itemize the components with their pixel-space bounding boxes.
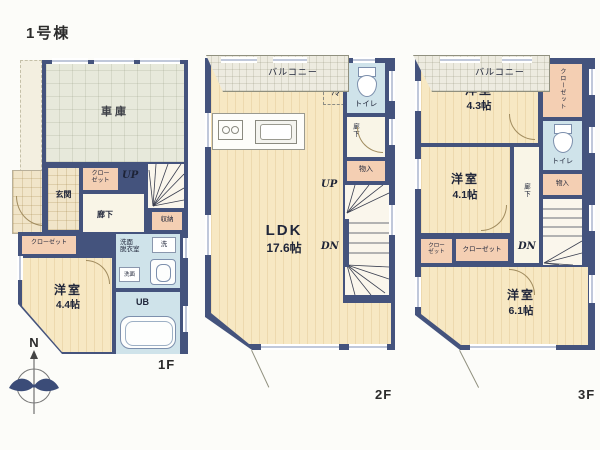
bedroom1-door-arc — [509, 114, 535, 140]
window-3f-right-1 — [589, 69, 595, 95]
window-2f-top-1 — [221, 57, 257, 63]
window-2f-right-1 — [389, 71, 395, 101]
hallway-3f-label: 廊下 — [522, 183, 529, 198]
floor-plan-1f: 車庫 玄関 クロー ゼット 廊下 UP 収納 クローゼット — [12, 58, 196, 376]
window-2f-left-2 — [205, 215, 211, 255]
closet3-3f: クローゼット — [456, 239, 508, 261]
bedroom2-size: 4.1帖 — [433, 189, 497, 201]
up-label-2f: UP — [321, 179, 337, 191]
entrance-closet-label: クロー ゼット — [83, 171, 118, 185]
bath-label: UB — [136, 297, 149, 307]
window-3f-left-3 — [415, 277, 421, 307]
floor-label-1f: 1F — [158, 358, 175, 373]
bedroom3-size: 6.1帖 — [489, 305, 553, 317]
stove-icon — [218, 120, 243, 140]
toilet-icon-2f — [357, 75, 377, 97]
garage-door-2 — [94, 58, 134, 64]
toilet-icon-3f — [553, 132, 573, 153]
storage-1f: 収納 — [152, 212, 182, 230]
balcony-3f-label: バルコニー — [460, 67, 540, 77]
floor-plan-3f: 洋室 4.3帖 クローゼット トイレ 物入 洋室 4.1帖 廊下 DN — [410, 55, 600, 400]
window-2f-left-1 — [205, 113, 211, 147]
window-3f-right-3 — [589, 205, 595, 231]
washroom-label: 洗面 脱衣室 — [120, 239, 140, 254]
dn-label-2f: DN — [321, 241, 339, 253]
storage-2f-label: 物入 — [347, 166, 385, 174]
storage-1f-label: 収納 — [152, 216, 182, 223]
vanity-sink-icon: 洗面 — [119, 267, 140, 282]
bathroom-1f: UB — [116, 292, 180, 354]
stairs-2f — [345, 185, 389, 295]
hallway-3f: 廊下 DN — [514, 147, 539, 263]
window-3f-right-4 — [589, 275, 595, 303]
balcony-2f-label: バルコニー — [253, 67, 333, 77]
window-3f-left-1 — [415, 81, 421, 111]
toilet-room-2f: トイレ — [347, 63, 385, 113]
closet3-3f-label: クローゼット — [456, 246, 508, 253]
closet2-3f: クロー ゼット — [421, 239, 452, 263]
bedroom2-door-arc — [481, 205, 507, 231]
window-2f-bottom-1 — [261, 344, 339, 350]
floor-label-2f: 2F — [375, 388, 392, 403]
compass-icon: N — [8, 336, 66, 424]
stairs-3f-treads — [543, 199, 582, 265]
washer-label: 洗 — [153, 241, 175, 248]
stairs-3f — [543, 199, 582, 265]
floor-label-3f: 3F — [578, 388, 595, 403]
balcony-3f-edge — [459, 350, 479, 388]
garage-door-1 — [52, 58, 88, 64]
closet1-3f-label: クローゼット — [558, 68, 565, 110]
stairs-1f — [148, 164, 184, 208]
ldk-size: 17.6帖 — [241, 242, 327, 256]
compass-rose — [8, 348, 66, 422]
kitchen-sink-icon — [255, 120, 297, 144]
window-3f-right-2 — [589, 127, 595, 153]
garage-label: 車庫 — [46, 106, 184, 119]
hallway-1f: 廊下 — [83, 194, 144, 232]
bedroom-1f-size: 4.4帖 — [36, 300, 100, 312]
bedroom3-3f: 洋室 6.1帖 — [421, 267, 588, 345]
window-1f-right-2 — [183, 306, 189, 332]
window-2f-top-2 — [273, 57, 307, 63]
storage-3f-label: 物入 — [543, 180, 582, 187]
washer-icon: 洗 — [152, 237, 176, 253]
closet-1f-label: クローゼット — [22, 240, 76, 247]
floor-plan-2f: LDK 17.6帖 冷 トイレ 廊下 — [203, 55, 400, 400]
stairs-2f-treads — [345, 185, 389, 295]
window-2f-bottom-2 — [349, 344, 387, 350]
entrance-closet: クロー ゼット — [83, 168, 118, 190]
ldk-name: LDK — [241, 222, 327, 239]
hallway-1f-label: 廊下 — [97, 210, 113, 219]
balcony-2f-edge — [251, 350, 269, 388]
page-title: 1号棟 — [26, 22, 70, 43]
sink-icon — [150, 259, 176, 285]
bedroom3-door-arc — [509, 269, 535, 295]
window-1f-left — [17, 256, 23, 280]
window-2f-top-3 — [353, 57, 375, 63]
toilet-2f-label: トイレ — [347, 100, 385, 109]
bedroom2-3f: 洋室 4.1帖 — [421, 147, 510, 233]
dn-label-3f: DN — [518, 241, 536, 253]
bedroom1-size: 4.3帖 — [447, 100, 511, 112]
window-1f-right-1 — [183, 238, 189, 258]
toilet-3f-label: トイレ — [543, 158, 582, 166]
garage-room: 車庫 — [46, 64, 184, 162]
up-label-1f: UP — [122, 170, 138, 182]
bathtub-icon — [120, 316, 176, 349]
washroom-1f: 洗面 脱衣室 洗 洗面 — [116, 234, 180, 288]
window-2f-right-3 — [389, 205, 395, 235]
window-3f-left-2 — [415, 159, 421, 189]
window-2f-right-2 — [389, 119, 395, 145]
closet2-3f-label: クロー ゼット — [421, 243, 452, 256]
toilet-room-3f: トイレ — [543, 121, 582, 170]
bedroom2-name: 洋室 — [433, 173, 497, 187]
sink-bowl — [156, 264, 171, 282]
hallway-2f: 廊下 — [347, 117, 385, 157]
bathtub-inner — [125, 321, 173, 346]
storage-3f: 物入 — [543, 174, 582, 195]
window-3f-top-1 — [440, 57, 480, 63]
floor-plan-sheet: 1号棟 車庫 玄関 クロー ゼット 廊下 UP — [0, 0, 600, 450]
closet-1f: クローゼット — [22, 236, 76, 254]
kitchen-counter — [212, 113, 305, 150]
storage-2f: 物入 — [347, 161, 385, 181]
bedroom-1f-name: 洋室 — [36, 284, 100, 298]
garage-door-3 — [140, 58, 180, 64]
window-3f-bottom — [470, 344, 556, 350]
entrance-room: 玄関 — [48, 168, 79, 230]
stairs-1f-treads — [148, 164, 184, 208]
vanity-label: 洗面 — [120, 272, 139, 278]
window-3f-top-2 — [502, 57, 532, 63]
entrance-label: 玄関 — [48, 190, 79, 199]
hallway-2f-door-arc — [357, 127, 383, 153]
